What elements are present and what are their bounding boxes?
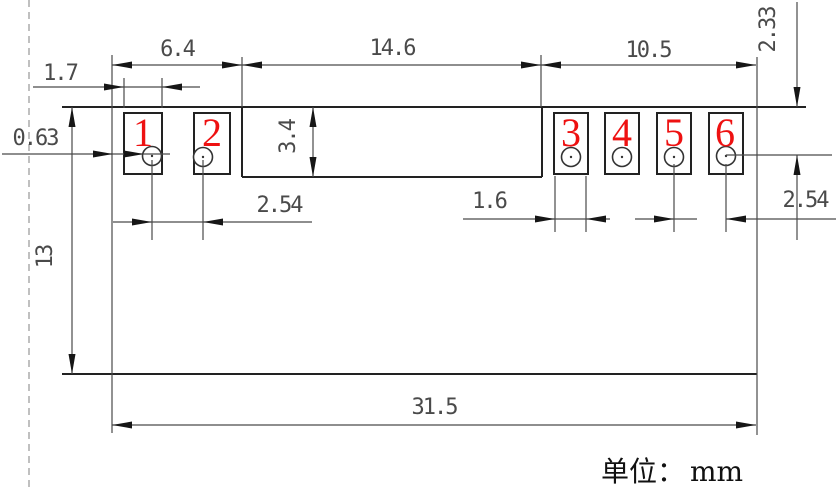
pad-1-hole-center xyxy=(151,155,153,157)
dim-31-5-label: 31.5 xyxy=(412,395,458,420)
arrow-right xyxy=(222,62,242,69)
pad-5-number: 5 xyxy=(664,110,684,155)
dim-2-33-label: 2.33 xyxy=(756,7,781,53)
arrow-right xyxy=(736,62,756,69)
dim-1-6: 1.6 xyxy=(463,176,610,232)
dimension-drawing: 1 2 3 4 5 6 6.4 xyxy=(0,0,836,490)
pad-1-number: 1 xyxy=(133,110,153,155)
pad-4-hole-center xyxy=(621,156,623,158)
arrow-right xyxy=(104,84,124,91)
arrow-right xyxy=(535,216,555,223)
pad-3-hole-center xyxy=(570,156,572,158)
arrow-right xyxy=(93,151,113,158)
arrow-down xyxy=(69,354,76,374)
dim-13-label: 13 xyxy=(33,245,58,268)
dim-2-54-right-label: 2.54 xyxy=(783,188,830,213)
arrow-left xyxy=(541,62,561,69)
arrow-up xyxy=(794,155,801,175)
arrow-down xyxy=(794,87,801,107)
dim-top-chain: 6.4 14.6 10.5 xyxy=(112,36,756,107)
arrow-down xyxy=(310,157,317,177)
dim-3-4-label: 3.4 xyxy=(276,118,301,153)
arrow-up xyxy=(69,107,76,127)
dim-2-54-left-label: 2.54 xyxy=(257,193,304,218)
dim-31-5: 31.5 xyxy=(112,395,756,429)
arrow-up xyxy=(310,107,317,127)
dim-6-4-label: 6.4 xyxy=(160,37,195,62)
pad-6-number: 6 xyxy=(715,110,735,155)
pad-3-number: 3 xyxy=(561,110,581,155)
dim-1-7-label: 1.7 xyxy=(43,61,77,86)
arrow-left xyxy=(242,62,262,69)
dim-1-7: 1.7 xyxy=(33,61,200,108)
pad-5-hole-center xyxy=(673,156,675,158)
dim-10-5-label: 10.5 xyxy=(626,38,672,63)
unit-prefix: 单位： xyxy=(601,455,685,488)
dim-14-6-label: 14.6 xyxy=(370,36,416,61)
dim-3-4: 3.4 xyxy=(276,107,317,177)
arrow-right xyxy=(736,422,756,429)
arrow-left xyxy=(586,216,606,223)
pad-4: 4 xyxy=(605,110,639,174)
arrow-left xyxy=(112,422,132,429)
arrow-right xyxy=(521,62,541,69)
arrow-left xyxy=(203,219,223,226)
arrow-right xyxy=(654,216,674,223)
pad-3: 3 xyxy=(554,110,588,174)
pad-2-hole-center xyxy=(202,156,204,158)
pad-2: 2 xyxy=(194,110,231,174)
drawing-canvas: 1 2 3 4 5 6 6.4 xyxy=(0,0,836,490)
unit-value: mm xyxy=(690,455,743,488)
arrow-left xyxy=(112,62,132,69)
dim-0-63-label: 0.63 xyxy=(13,126,59,151)
unit-label: 单位： mm xyxy=(601,455,743,488)
arrow-right xyxy=(132,219,152,226)
pad-4-number: 4 xyxy=(612,110,632,155)
pad-1: 1 xyxy=(124,110,162,174)
arrow-left xyxy=(726,216,746,223)
dim-1-6-label: 1.6 xyxy=(472,189,506,214)
pad-2-number: 2 xyxy=(202,110,222,155)
arrow-left xyxy=(162,84,182,91)
board-outline xyxy=(62,55,806,435)
